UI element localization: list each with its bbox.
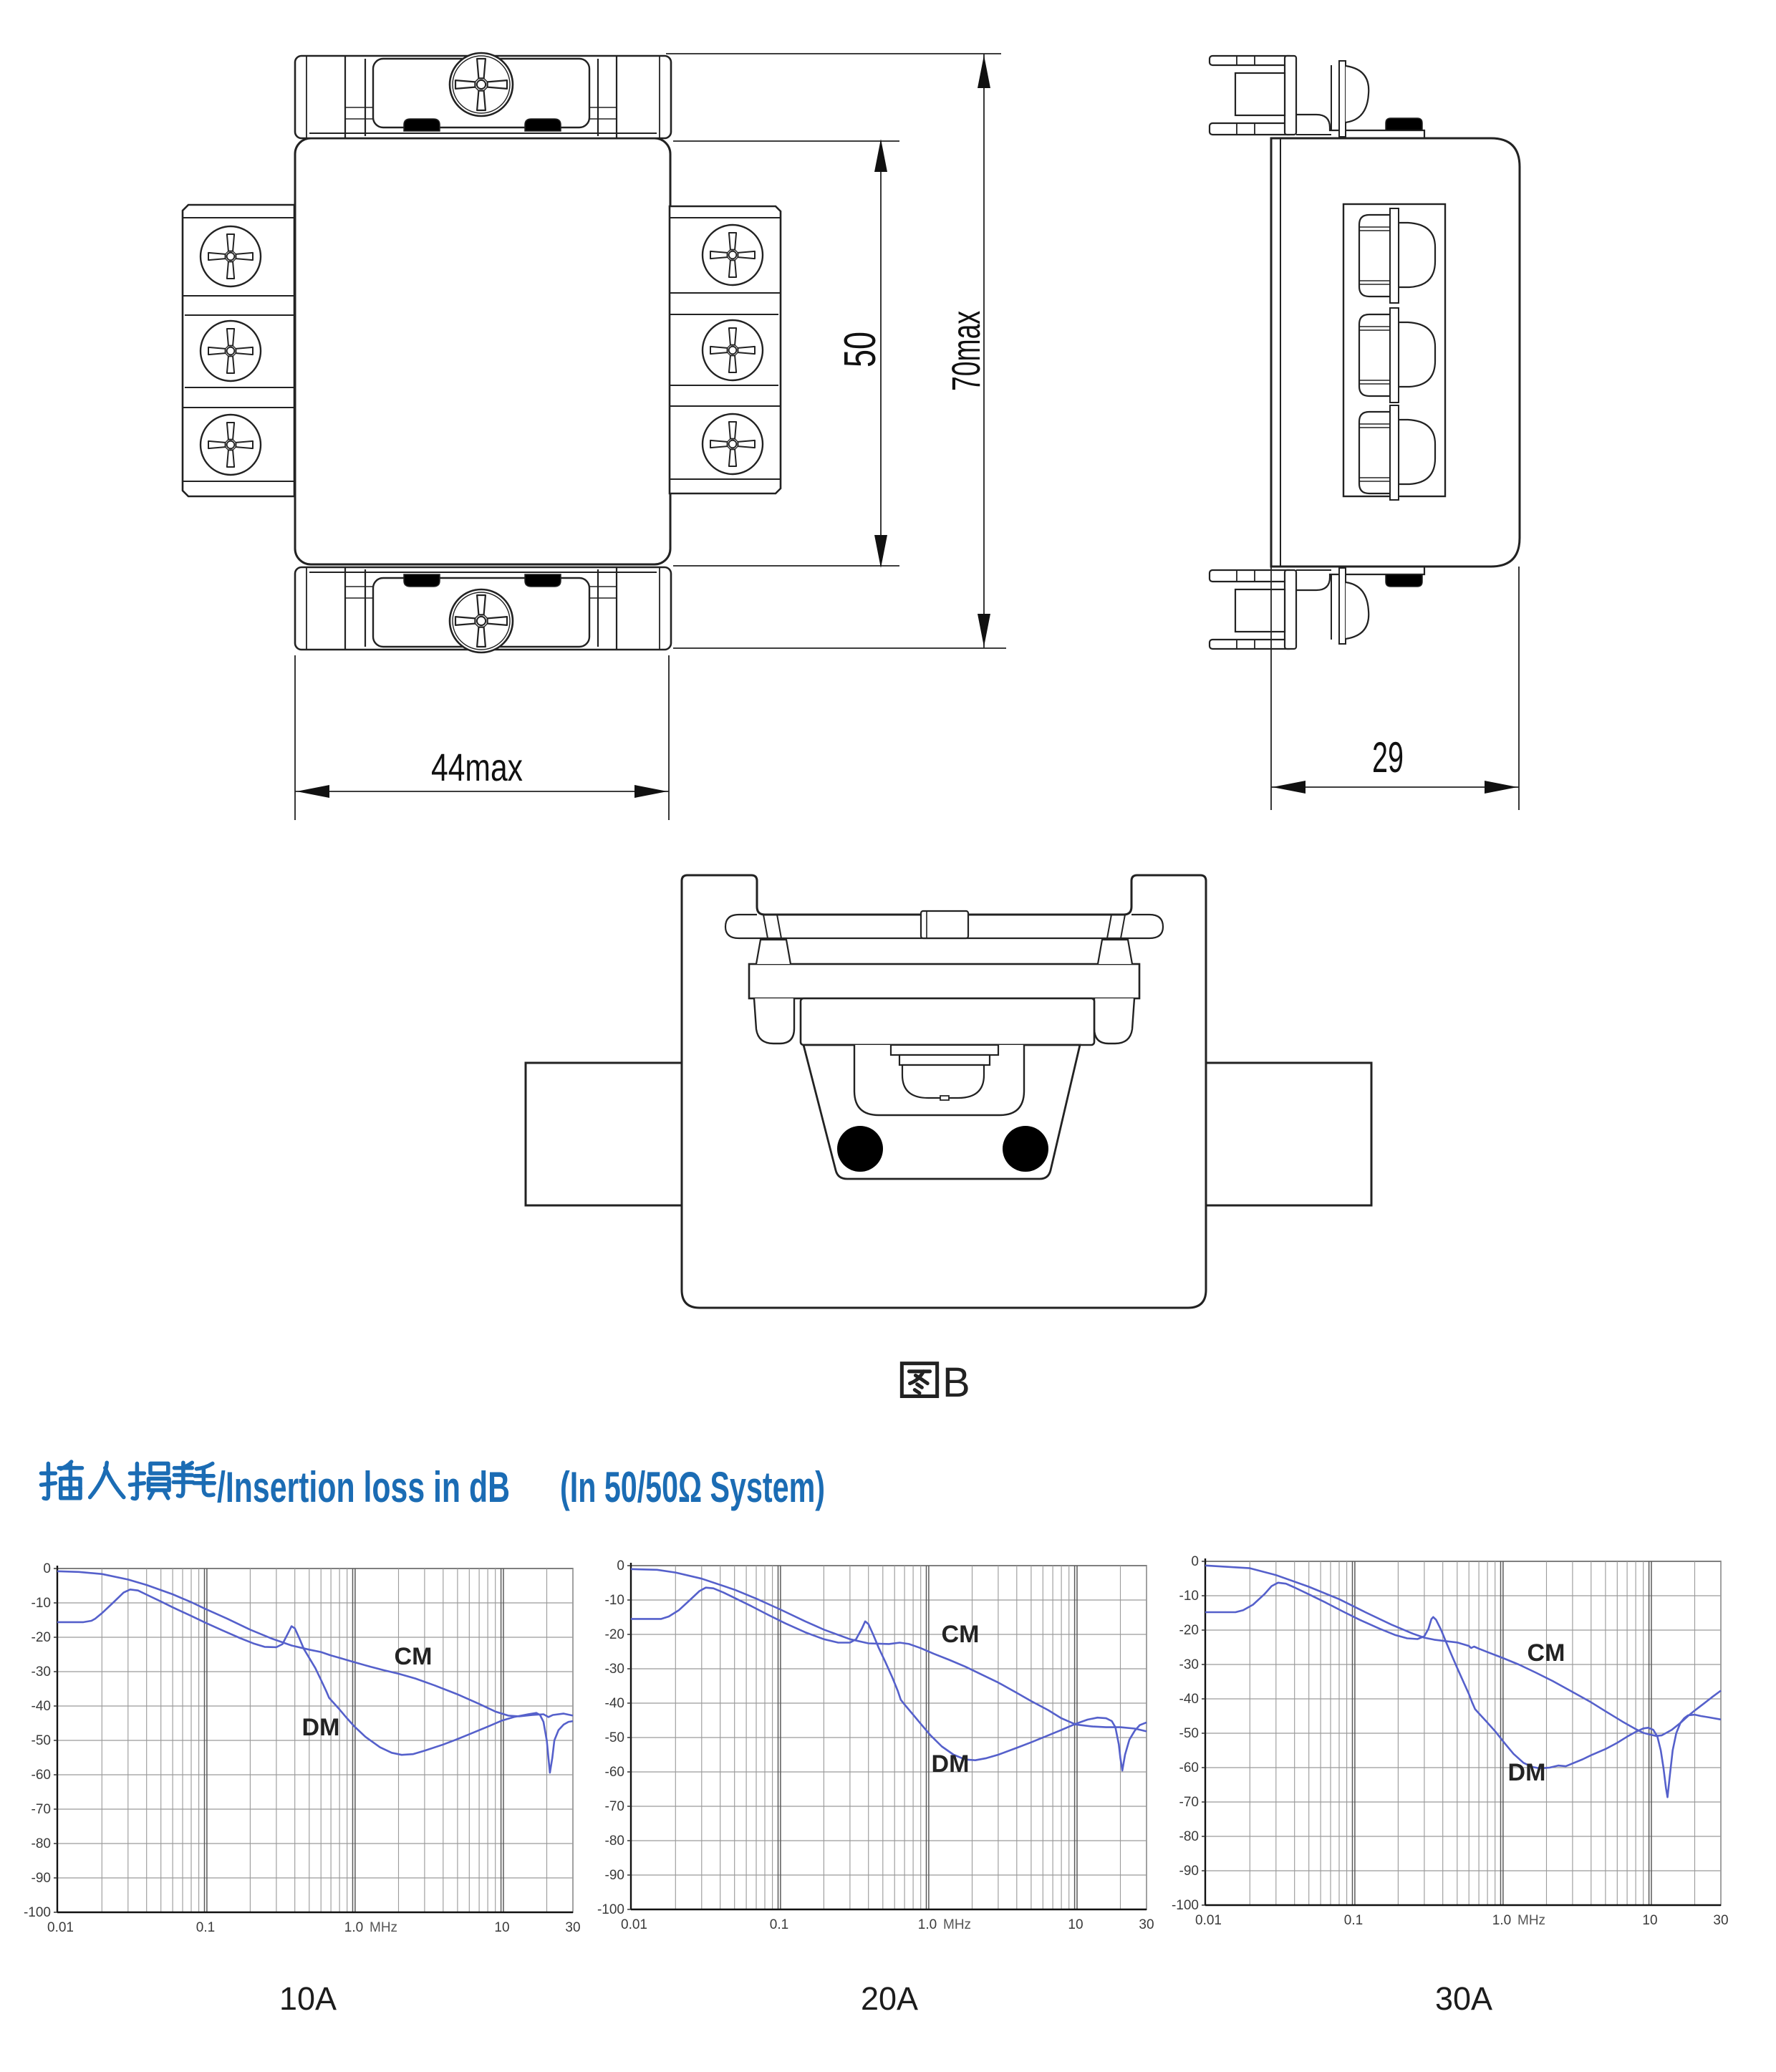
svg-text:-80: -80 xyxy=(605,1834,624,1849)
svg-text:-90: -90 xyxy=(1179,1864,1199,1879)
svg-text:B: B xyxy=(942,1359,970,1406)
svg-text:0.01: 0.01 xyxy=(47,1920,74,1935)
svg-text:-20: -20 xyxy=(1179,1623,1199,1638)
svg-text:-90: -90 xyxy=(32,1871,51,1886)
svg-text:-20: -20 xyxy=(32,1630,51,1645)
svg-text:0: 0 xyxy=(617,1558,624,1574)
svg-text:-60: -60 xyxy=(1179,1760,1199,1775)
svg-text:30: 30 xyxy=(1713,1913,1728,1928)
svg-text:-50: -50 xyxy=(605,1730,624,1745)
svg-text:0.1: 0.1 xyxy=(770,1917,788,1932)
svg-text:-40: -40 xyxy=(605,1696,624,1711)
svg-text:DM: DM xyxy=(1508,1759,1546,1786)
svg-text:1.0: 1.0 xyxy=(1492,1913,1511,1928)
svg-text:30A: 30A xyxy=(1435,1980,1492,2017)
svg-text:-70: -70 xyxy=(605,1799,624,1814)
svg-text:0: 0 xyxy=(43,1561,51,1576)
svg-text:(In 50/50Ω System): (In 50/50Ω System) xyxy=(560,1463,825,1511)
svg-text:30: 30 xyxy=(565,1920,580,1935)
svg-text:-100: -100 xyxy=(24,1905,51,1920)
svg-text:-70: -70 xyxy=(32,1802,51,1817)
svg-text:-50: -50 xyxy=(1179,1726,1199,1741)
svg-text:0.01: 0.01 xyxy=(621,1917,647,1932)
svg-text:0: 0 xyxy=(1191,1554,1199,1569)
svg-text:-40: -40 xyxy=(1179,1692,1199,1707)
svg-text:MHz: MHz xyxy=(1517,1913,1545,1928)
svg-text:0.01: 0.01 xyxy=(1195,1913,1222,1928)
svg-text:10: 10 xyxy=(1068,1917,1083,1932)
svg-text:/Insertion loss in dB: /Insertion loss in dB xyxy=(217,1463,510,1511)
svg-text:29: 29 xyxy=(1372,733,1404,781)
svg-text:DM: DM xyxy=(932,1750,970,1778)
svg-text:MHz: MHz xyxy=(943,1917,971,1932)
svg-text:1.0: 1.0 xyxy=(344,1920,363,1935)
svg-text:-30: -30 xyxy=(1179,1657,1199,1672)
svg-text:0.1: 0.1 xyxy=(1344,1913,1363,1928)
svg-text:-60: -60 xyxy=(605,1765,624,1780)
svg-text:50: 50 xyxy=(836,332,885,367)
svg-text:-80: -80 xyxy=(1179,1829,1199,1844)
svg-text:-40: -40 xyxy=(32,1699,51,1714)
svg-text:10: 10 xyxy=(1642,1913,1657,1928)
svg-text:-70: -70 xyxy=(1179,1795,1199,1810)
svg-text:-100: -100 xyxy=(597,1902,624,1917)
svg-text:-100: -100 xyxy=(1172,1898,1199,1913)
svg-text:-80: -80 xyxy=(32,1836,51,1851)
svg-text:-10: -10 xyxy=(605,1593,624,1608)
svg-text:-50: -50 xyxy=(32,1733,51,1748)
svg-text:CM: CM xyxy=(395,1643,433,1670)
svg-text:CM: CM xyxy=(942,1621,980,1648)
svg-text:-90: -90 xyxy=(605,1868,624,1883)
svg-text:-10: -10 xyxy=(1179,1589,1199,1604)
svg-text:10A: 10A xyxy=(279,1980,337,2017)
svg-text:-10: -10 xyxy=(32,1596,51,1611)
svg-text:-20: -20 xyxy=(605,1627,624,1642)
svg-text:0.1: 0.1 xyxy=(196,1920,215,1935)
svg-text:-30: -30 xyxy=(32,1664,51,1680)
svg-text:44max: 44max xyxy=(431,746,523,789)
svg-text:70max: 70max xyxy=(943,311,988,391)
svg-text:-30: -30 xyxy=(605,1662,624,1677)
svg-text:CM: CM xyxy=(1528,1639,1565,1667)
svg-text:DM: DM xyxy=(302,1714,340,1741)
svg-text:20A: 20A xyxy=(861,1980,918,2017)
svg-text:1.0: 1.0 xyxy=(918,1917,937,1932)
svg-text:30: 30 xyxy=(1139,1917,1154,1932)
svg-text:-60: -60 xyxy=(32,1768,51,1783)
svg-text:10: 10 xyxy=(494,1920,509,1935)
svg-text:MHz: MHz xyxy=(370,1920,397,1935)
